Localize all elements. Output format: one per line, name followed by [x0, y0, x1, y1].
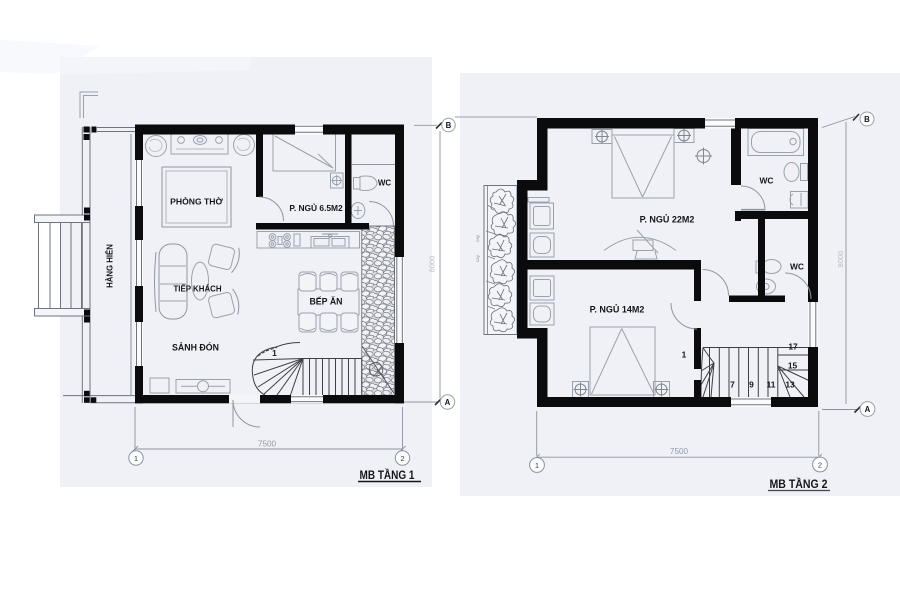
svg-text:7500: 7500 — [670, 447, 689, 456]
svg-text:1: 1 — [535, 461, 539, 470]
svg-text:7: 7 — [730, 380, 735, 390]
svg-text:8000: 8000 — [836, 251, 845, 268]
svg-text:7500: 7500 — [258, 440, 277, 449]
svg-text:WC: WC — [760, 176, 774, 186]
svg-text:11: 11 — [767, 380, 776, 390]
svg-text:WC: WC — [790, 262, 804, 272]
svg-text:MB TẦNG 2: MB TẦNG 2 — [770, 477, 828, 491]
svg-text:WC: WC — [378, 179, 392, 188]
svg-text:TIẾP KHÁCH: TIẾP KHÁCH — [173, 284, 221, 294]
svg-text:9: 9 — [749, 380, 754, 390]
svg-text:15: 15 — [788, 361, 798, 371]
svg-text:2: 2 — [400, 454, 404, 463]
svg-text:A: A — [445, 398, 451, 407]
svg-text:P. NGỦ 22M2: P. NGỦ 22M2 — [640, 214, 695, 225]
svg-text:B: B — [446, 121, 452, 130]
svg-text:8000: 8000 — [428, 256, 437, 273]
svg-text:MB TẦNG 1: MB TẦNG 1 — [360, 468, 415, 482]
svg-text:1: 1 — [682, 350, 687, 360]
svg-text:BẾP ĂN: BẾP ĂN — [309, 297, 342, 307]
svg-text:17: 17 — [788, 342, 798, 352]
svg-text:cay: cay — [475, 234, 480, 242]
svg-text:2: 2 — [818, 461, 822, 470]
svg-text:P. NGỦ 6.5M2: P. NGỦ 6.5M2 — [289, 202, 343, 213]
svg-text:A: A — [865, 405, 871, 414]
svg-text:B: B — [864, 115, 870, 124]
svg-text:13: 13 — [785, 380, 795, 390]
svg-text:P. NGỦ 14M2: P. NGỦ 14M2 — [590, 304, 645, 315]
svg-text:1: 1 — [272, 348, 277, 358]
svg-text:cay: cay — [475, 254, 480, 262]
svg-text:SẢNH ĐÓN: SẢNH ĐÓN — [172, 342, 219, 353]
svg-text:HÀNG HIÊN: HÀNG HIÊN — [106, 244, 115, 288]
svg-text:1: 1 — [134, 454, 138, 463]
svg-text:PHÒNG THỜ: PHÒNG THỜ — [170, 196, 223, 207]
